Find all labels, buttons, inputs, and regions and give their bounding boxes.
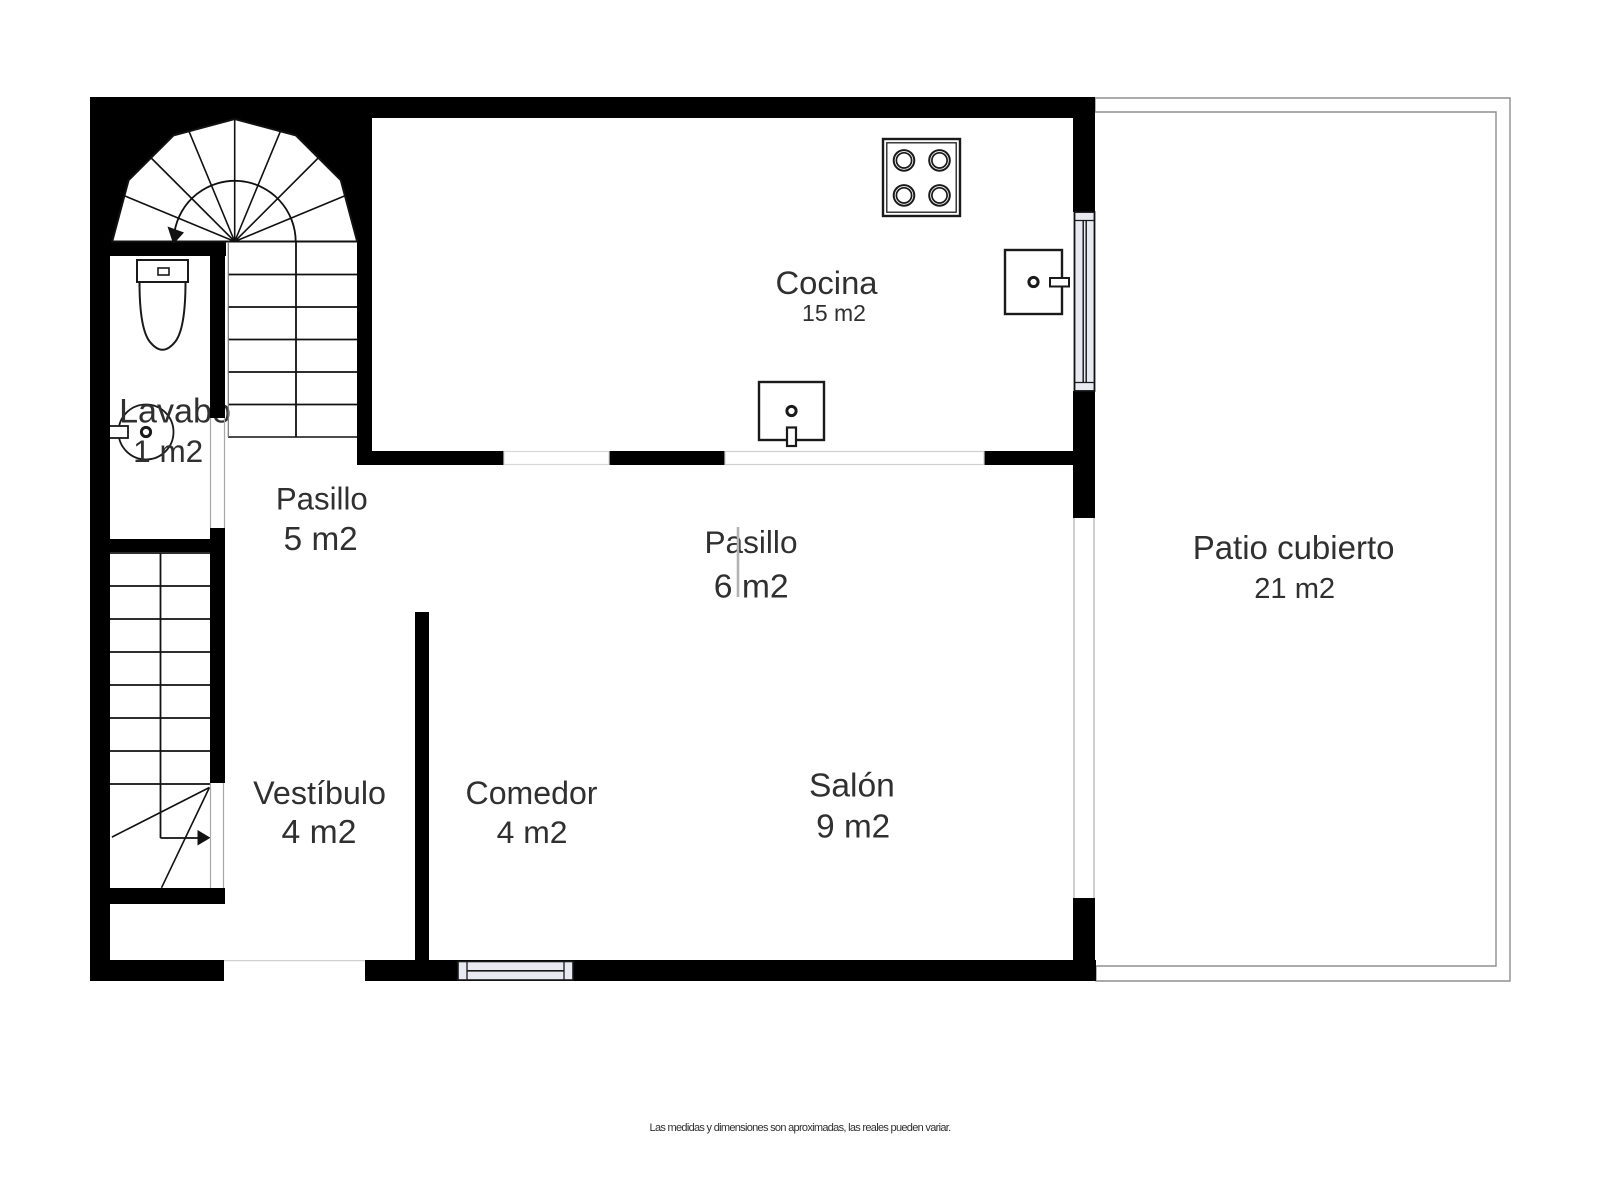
svg-text:Comedor: Comedor [466, 775, 598, 811]
svg-text:6 m2: 6 m2 [714, 568, 789, 606]
svg-text:21 m2: 21 m2 [1254, 573, 1335, 605]
svg-text:1 m2: 1 m2 [133, 433, 203, 469]
svg-text:Vestíbulo: Vestíbulo [253, 775, 386, 811]
svg-text:4 m2: 4 m2 [497, 814, 568, 850]
svg-text:Salón: Salón [809, 768, 895, 805]
svg-text:4 m2: 4 m2 [282, 813, 357, 851]
svg-text:Cocina: Cocina [775, 264, 878, 301]
svg-text:5 m2: 5 m2 [284, 521, 358, 558]
svg-text:15 m2: 15 m2 [802, 300, 866, 326]
svg-text:Patio cubierto: Patio cubierto [1193, 529, 1395, 566]
svg-text:Pasillo: Pasillo [704, 524, 797, 560]
svg-text:Pasillo: Pasillo [276, 482, 368, 517]
svg-text:Las medidas y dimensiones son: Las medidas y dimensiones son aproximada… [650, 1122, 952, 1134]
svg-text:9 m2: 9 m2 [816, 809, 890, 846]
